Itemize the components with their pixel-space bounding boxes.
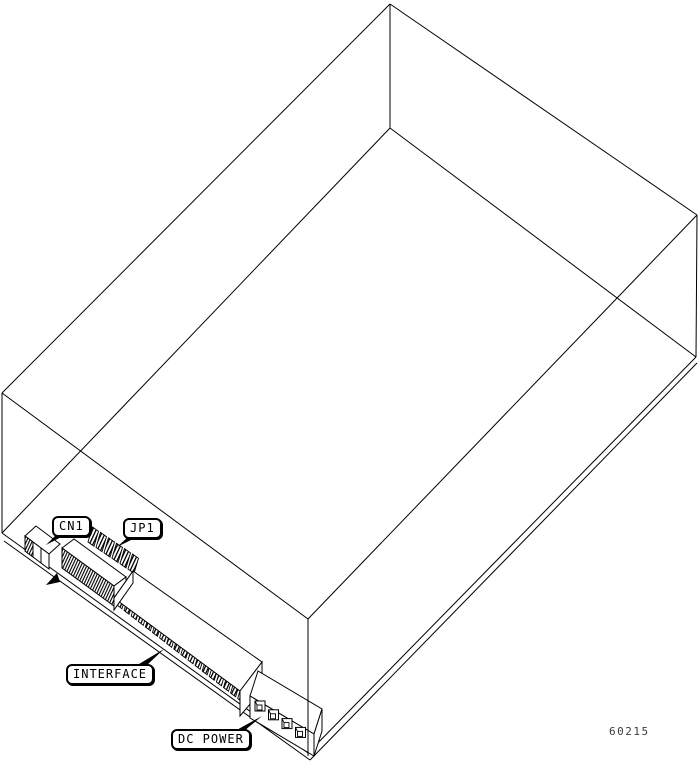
callout-interface: INTERFACE [66,664,154,685]
dc-pin-socket [269,710,279,720]
drive-isometric-diagram [0,0,699,764]
dc-pin-socket [282,719,292,729]
edge-line [2,4,390,393]
edge-line [4,541,310,760]
dc-pin-socket [255,701,265,711]
figure-canvas: CN1 JP1 INTERFACE DC POWER 60215 [0,0,699,764]
edge-line [310,363,697,760]
edge-line [308,357,696,753]
edge-line [390,4,697,215]
callout-cn1: CN1 [52,516,91,537]
edge-line [308,215,697,619]
edge-line [696,215,697,357]
callout-jp1: JP1 [123,518,162,539]
drive-chassis-wireframe [2,4,697,760]
edge-line [390,128,696,357]
pin1-arrow-marker [46,573,60,585]
edge-line [2,393,308,619]
interface-edge-connector [114,571,262,716]
drawing-number: 60215 [609,725,650,738]
dc-pin-socket [296,727,306,737]
edge-line [2,128,390,533]
callout-dc-power: DC POWER [171,729,251,750]
dc-power-4pin-connector [250,619,322,756]
